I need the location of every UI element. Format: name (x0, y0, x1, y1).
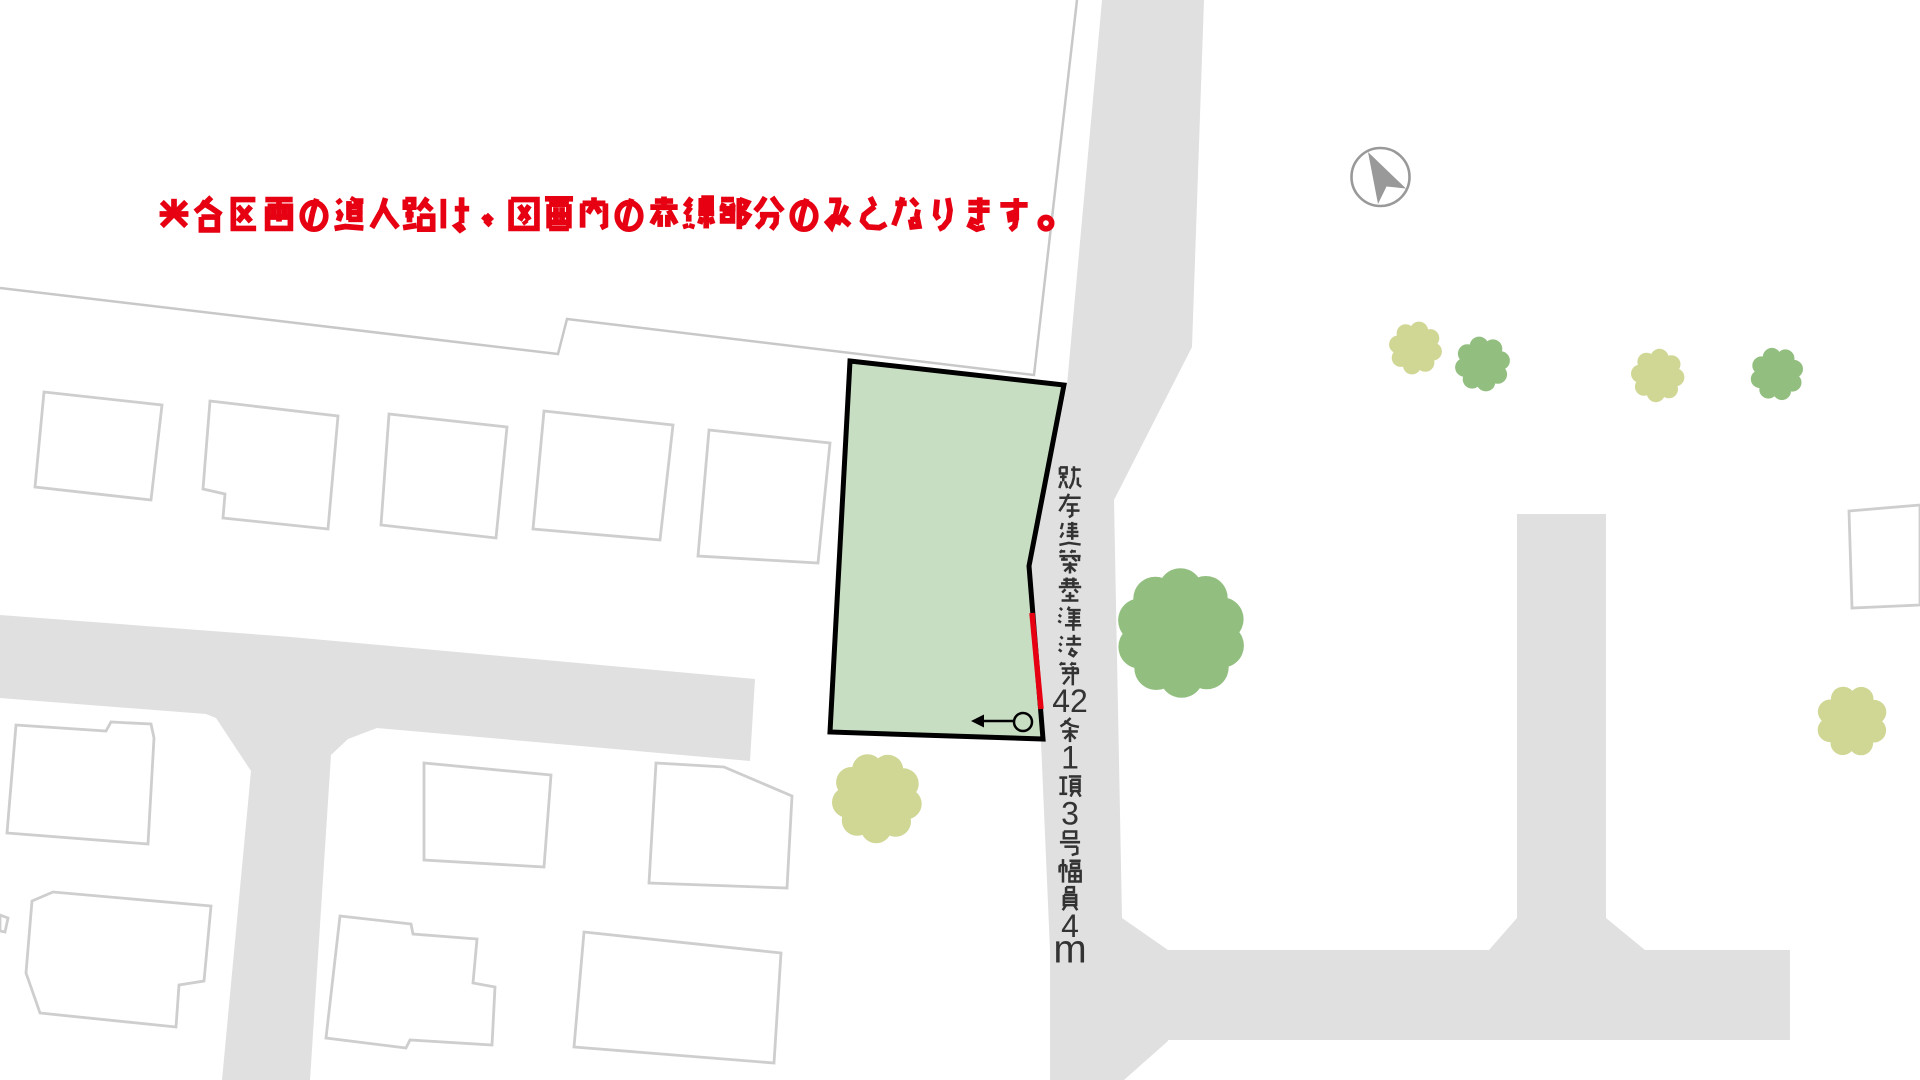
svg-text:42: 42 (1052, 683, 1088, 719)
svg-text:1: 1 (1061, 739, 1079, 775)
svg-text:3: 3 (1061, 796, 1079, 832)
svg-text:m: m (1053, 928, 1086, 972)
